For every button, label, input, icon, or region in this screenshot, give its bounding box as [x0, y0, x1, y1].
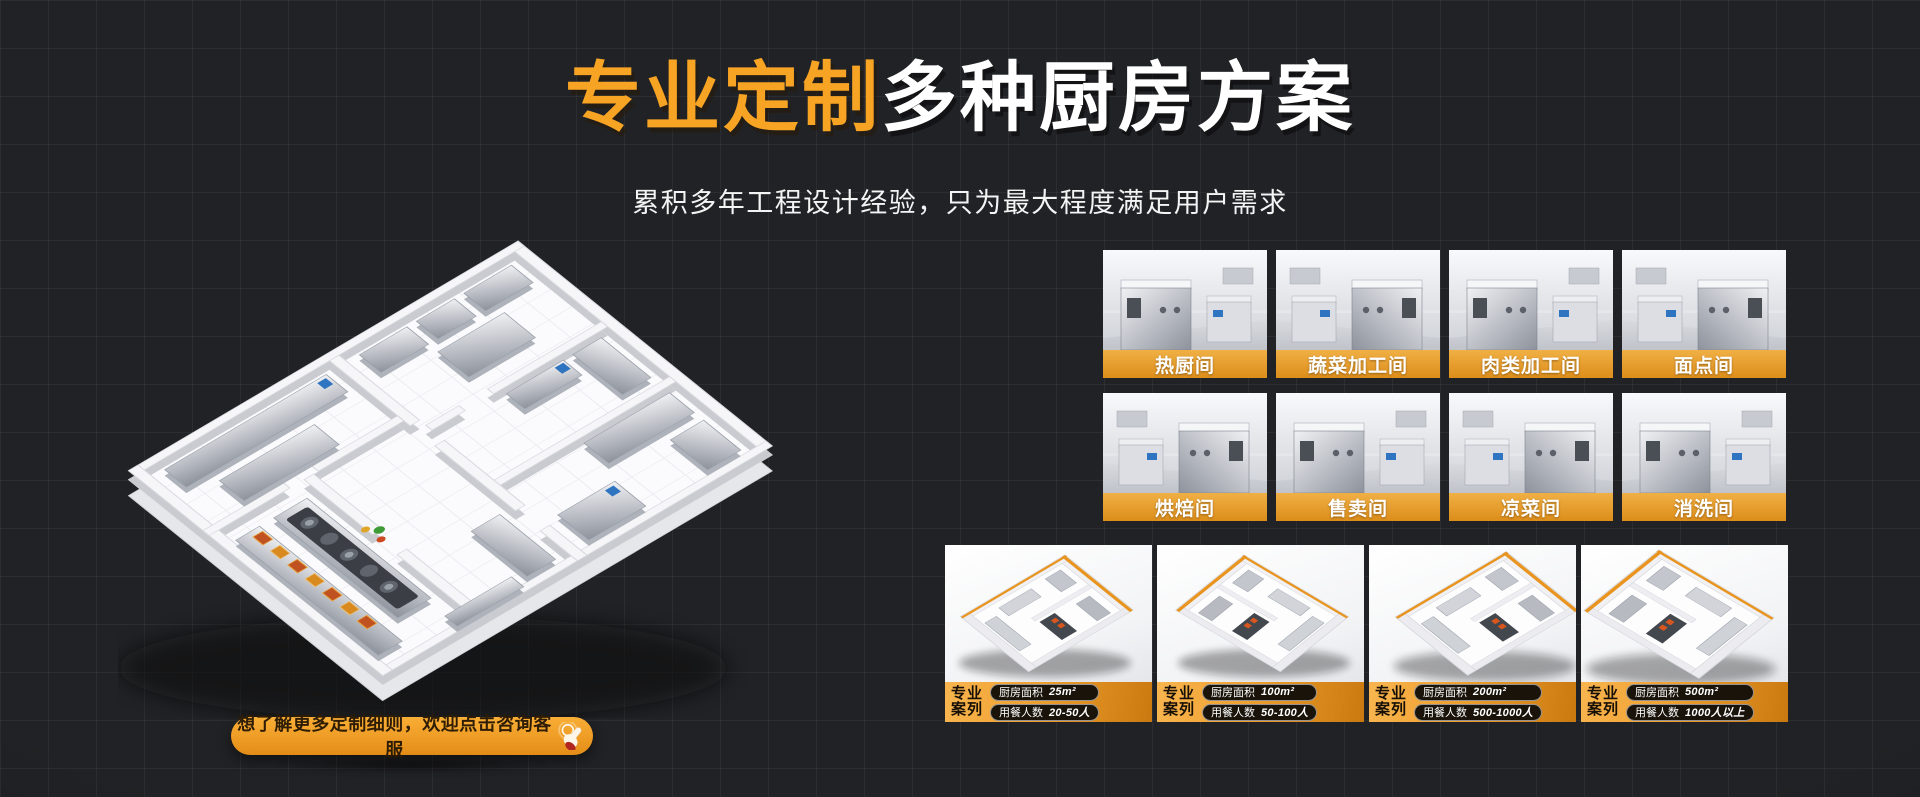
title-rest: 多种厨房方案	[881, 56, 1355, 141]
rooms-grid: 热厨间 蔬菜加工间 肉类加工间 面点间 烘焙间 售卖间 凉菜间 消洗间	[1103, 250, 1786, 521]
room-tile-meat[interactable]: 肉类加工间	[1449, 250, 1613, 378]
badge-area: 厨房面积500m²	[1626, 684, 1754, 701]
case-badges: 厨房面积100m² 用餐人数50-100人	[1202, 684, 1317, 721]
kitchen-floorplan-image	[118, 226, 790, 718]
room-label: 热厨间	[1103, 350, 1267, 378]
page-subtitle: 累积多年工程设计经验，只为最大程度满足用户需求	[0, 181, 1920, 220]
promo-banner: 专业定制多种厨房方案 累积多年工程设计经验，只为最大程度满足用户需求	[0, 0, 1920, 797]
room-label: 蔬菜加工间	[1276, 350, 1440, 378]
case-card-500m2[interactable]: 专业案列 厨房面积500m² 用餐人数1000人以上	[1581, 545, 1788, 722]
badge-diners: 用餐人数50-100人	[1202, 704, 1317, 721]
case-photo	[1369, 545, 1576, 682]
case-badges: 厨房面积200m² 用餐人数500-1000人	[1414, 684, 1542, 721]
room-label: 凉菜间	[1449, 493, 1613, 521]
case-badges: 厨房面积500m² 用餐人数1000人以上	[1626, 684, 1754, 721]
badge-diners: 用餐人数1000人以上	[1626, 704, 1754, 721]
room-tile-pastry[interactable]: 面点间	[1622, 250, 1786, 378]
room-tile-cold-dish[interactable]: 凉菜间	[1449, 393, 1613, 521]
room-label: 面点间	[1622, 350, 1786, 378]
page-title: 专业定制多种厨房方案	[0, 56, 1920, 141]
case-card-100m2[interactable]: 专业案列 厨房面积100m² 用餐人数50-100人	[1157, 545, 1364, 722]
case-badges: 厨房面积25m² 用餐人数20-50人	[990, 684, 1099, 721]
badge-diners: 用餐人数500-1000人	[1414, 704, 1542, 721]
room-tile-hot-kitchen[interactable]: 热厨间	[1103, 250, 1267, 378]
cases-row: 专业案列 厨房面积25m² 用餐人数20-50人 专业案列 厨房面积100m² …	[945, 545, 1788, 722]
badge-diners: 用餐人数20-50人	[990, 704, 1099, 721]
room-label: 烘焙间	[1103, 493, 1267, 521]
cta-label: 想了解更多定制细则，欢迎点击咨询客服	[237, 710, 552, 762]
case-tag: 专业案列	[1587, 686, 1619, 719]
case-photo	[1157, 545, 1364, 682]
room-tile-dishwashing[interactable]: 消洗间	[1622, 393, 1786, 521]
room-tile-baking[interactable]: 烘焙间	[1103, 393, 1267, 521]
case-card-200m2[interactable]: 专业案列 厨房面积200m² 用餐人数500-1000人	[1369, 545, 1576, 722]
case-card-25m2[interactable]: 专业案列 厨房面积25m² 用餐人数20-50人	[945, 545, 1152, 722]
case-band: 专业案列 厨房面积500m² 用餐人数1000人以上	[1581, 682, 1788, 722]
case-photo	[1581, 545, 1788, 682]
badge-area: 厨房面积100m²	[1202, 684, 1317, 701]
case-tag: 专业案列	[1163, 686, 1195, 719]
case-band: 专业案列 厨房面积25m² 用餐人数20-50人	[945, 682, 1152, 722]
room-tile-serving[interactable]: 售卖间	[1276, 393, 1440, 521]
hand-click-icon	[557, 722, 587, 750]
case-photo	[945, 545, 1152, 682]
room-tile-vegetable[interactable]: 蔬菜加工间	[1276, 250, 1440, 378]
badge-area: 厨房面积200m²	[1414, 684, 1542, 701]
cta-button[interactable]: 想了解更多定制细则，欢迎点击咨询客服	[231, 717, 593, 755]
case-band: 专业案列 厨房面积100m² 用餐人数50-100人	[1157, 682, 1364, 722]
badge-area: 厨房面积25m²	[990, 684, 1099, 701]
room-label: 肉类加工间	[1449, 350, 1613, 378]
title-highlight: 专业定制	[565, 56, 881, 141]
case-tag: 专业案列	[1375, 686, 1407, 719]
room-label: 售卖间	[1276, 493, 1440, 521]
room-label: 消洗间	[1622, 493, 1786, 521]
case-tag: 专业案列	[951, 686, 983, 719]
case-band: 专业案列 厨房面积200m² 用餐人数500-1000人	[1369, 682, 1576, 722]
